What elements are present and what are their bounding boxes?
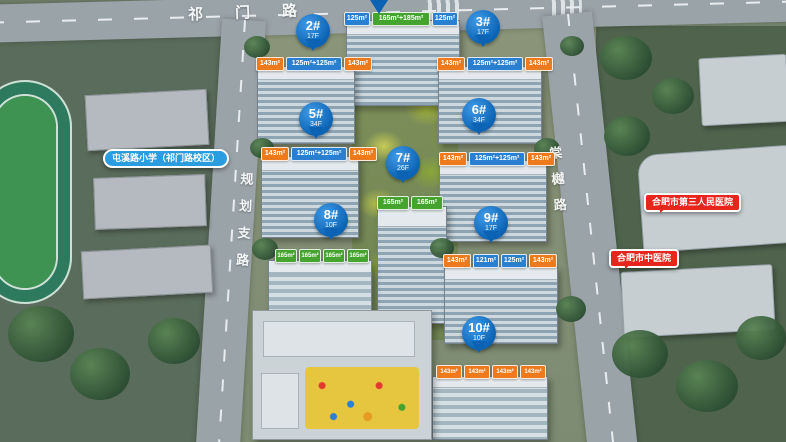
trees [612, 330, 668, 378]
kindergarten-building [252, 310, 432, 440]
unit-size-tag: 125m² [501, 254, 527, 268]
pin-floor-count: 17F [296, 33, 330, 41]
building-pin-5[interactable]: 5# 34F [299, 102, 333, 136]
rooftop-playground [305, 367, 419, 429]
unit-tags-building-10: 143m² 143m² 143m² 143m² [436, 365, 546, 379]
kindergarten-wing [261, 373, 299, 429]
pin-floor-count: 17F [466, 29, 500, 37]
unit-size-tag: 143m² [520, 365, 546, 379]
trees [604, 116, 650, 156]
unit-size-tag: 143m² [464, 365, 490, 379]
unit-size-tag: 143m² [437, 57, 465, 71]
sports-field [0, 96, 56, 288]
school-label[interactable]: 屯溪路小学（祁门路校区） [103, 149, 229, 168]
trees [600, 36, 652, 80]
unit-size-tag: 125m²+125m² [291, 147, 347, 161]
unit-size-tag: 165m² [275, 249, 297, 263]
unit-size-tag: 143m² [261, 147, 289, 161]
unit-tags-building-8: 165m² 165m² 165m² 165m² [275, 249, 369, 263]
unit-size-tag: 125m² [344, 12, 370, 26]
trees [70, 348, 130, 400]
pin-building-number: 9# [474, 210, 508, 225]
pin-floor-count: 17F [474, 225, 508, 233]
unit-size-tag: 165m² [299, 249, 321, 263]
unit-size-tag: 143m² [436, 365, 462, 379]
pin-floor-count: 10F [314, 222, 348, 230]
kindergarten-wing [263, 321, 415, 357]
unit-size-tag: 125m²+125m² [286, 57, 342, 71]
unit-tags-building-9: 143m² 121m² 125m² 143m² [443, 254, 557, 268]
unit-tags-building-3: 143m² 125m²+125m² 143m² [437, 57, 553, 71]
unit-size-tag: 125m²+125m² [467, 57, 523, 71]
unit-tags-building-1: 125m² 165m²+185m² 125m² [344, 12, 458, 26]
pin-floor-count: 10F [462, 335, 496, 343]
unit-size-tag: 165m² [323, 249, 345, 263]
building-pin-9[interactable]: 9# 17F [474, 206, 508, 240]
unit-size-tag: 121m² [473, 254, 499, 268]
building-pin-6[interactable]: 6# 34F [462, 98, 496, 132]
pin-building-number: 5# [299, 106, 333, 121]
unit-size-tag: 143m² [529, 254, 557, 268]
unit-size-tag: 125m² [432, 12, 458, 26]
building-7 [377, 206, 447, 324]
school-building [85, 89, 210, 151]
unit-size-tag: 143m² [344, 57, 372, 71]
pin-floor-count: 26F [386, 165, 420, 173]
school-building [81, 245, 213, 300]
unit-size-tag: 165m² [377, 196, 409, 210]
unit-size-tag: 143m² [492, 365, 518, 379]
pin-building-number: 3# [466, 14, 500, 29]
unit-size-tag: 165m² [411, 196, 443, 210]
building-pin-2[interactable]: 2# 17F [296, 14, 330, 48]
school-building [93, 174, 207, 230]
unit-size-tag: 165m² [347, 249, 369, 263]
unit-tags-building-7: 165m² 165m² [377, 196, 443, 210]
unit-size-tag: 143m² [525, 57, 553, 71]
trees [148, 318, 200, 364]
unit-tags-building-6: 143m² 125m²+125m² 143m² [439, 152, 555, 166]
pin-building-number: 7# [386, 150, 420, 165]
unit-size-tag: 125m²+125m² [469, 152, 525, 166]
pin-floor-count: 34F [462, 117, 496, 125]
pin-floor-count: 34F [299, 121, 333, 129]
unit-size-tag: 143m² [256, 57, 284, 71]
building-pin-8[interactable]: 8# 10F [314, 203, 348, 237]
building-10 [432, 376, 548, 440]
trees [8, 306, 74, 362]
pin-building-number: 8# [314, 207, 348, 222]
pin-building-number: 6# [462, 102, 496, 117]
unit-tags-building-5: 143m² 125m²+125m² 143m² [261, 147, 377, 161]
unit-size-tag: 143m² [349, 147, 377, 161]
unit-size-tag: 143m² [439, 152, 467, 166]
pin-building-number: 10# [462, 320, 496, 335]
building-pin-3[interactable]: 3# 17F [466, 10, 500, 44]
unit-size-tag: 143m² [527, 152, 555, 166]
trees [652, 78, 694, 114]
trees [556, 296, 586, 322]
hospital-label-tcm[interactable]: 合肥市中医院 [609, 249, 679, 268]
unit-tags-building-2: 143m² 125m²+125m² 143m² [256, 57, 372, 71]
building-pin-1-partial [370, 0, 388, 23]
running-track [0, 80, 72, 304]
hospital-building [698, 54, 786, 127]
trees [244, 36, 270, 58]
building-pin-10[interactable]: 10# 10F [462, 316, 496, 350]
unit-size-tag: 143m² [443, 254, 471, 268]
trees [736, 316, 786, 360]
hospital-label-third-peoples[interactable]: 合肥市第三人民医院 [644, 193, 741, 212]
trees [676, 360, 738, 412]
building-pin-7[interactable]: 7# 26F [386, 146, 420, 180]
pin-building-number: 2# [296, 18, 330, 33]
aerial-site-plan: 祁门路 规划支路 棠樾路 125m² 165m²+185m² 125m² 143… [0, 0, 786, 442]
trees [560, 36, 584, 56]
